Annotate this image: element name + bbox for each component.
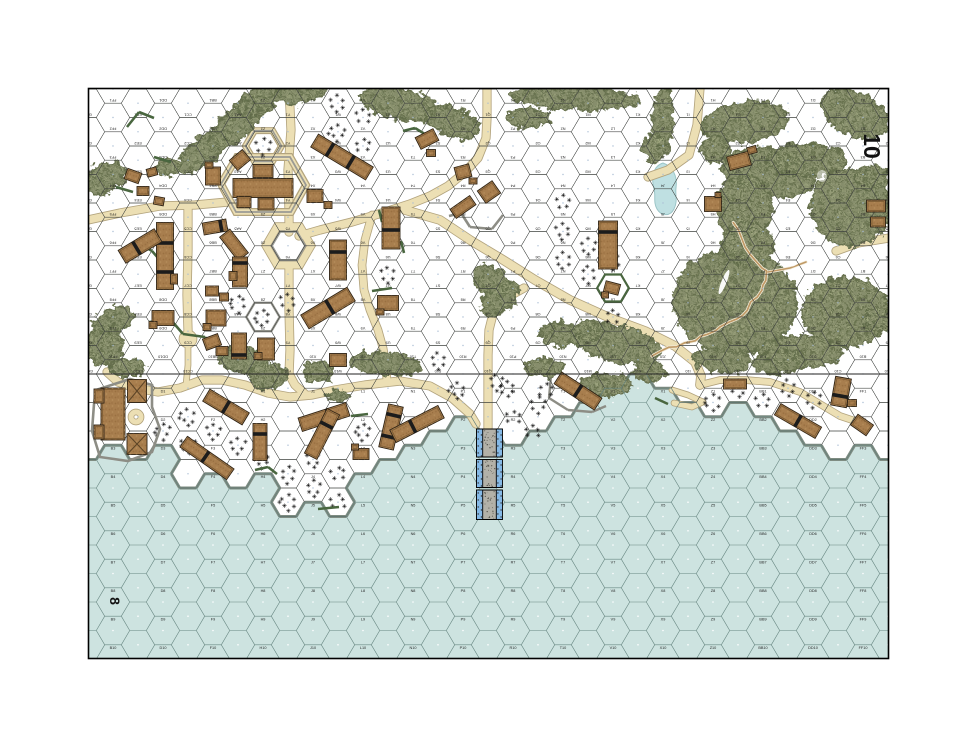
svg-text:P8: P8 — [461, 589, 466, 593]
svg-text:DD9: DD9 — [809, 618, 817, 622]
svg-text:V5: V5 — [361, 212, 366, 216]
svg-text:T5: T5 — [561, 503, 565, 507]
svg-text:FF5: FF5 — [110, 212, 117, 216]
svg-text:B3: B3 — [111, 446, 116, 450]
svg-text:C3: C3 — [836, 169, 841, 173]
svg-text:N10: N10 — [560, 355, 567, 359]
svg-text:R8: R8 — [511, 589, 516, 593]
svg-text:N7: N7 — [411, 561, 416, 565]
svg-text:T1: T1 — [411, 98, 415, 102]
svg-text:L1: L1 — [611, 98, 615, 102]
svg-text:L2: L2 — [361, 418, 365, 422]
svg-text:R3: R3 — [461, 155, 466, 159]
svg-text:V5: V5 — [611, 503, 616, 507]
svg-text:X6: X6 — [311, 241, 316, 245]
svg-text:Z3: Z3 — [711, 446, 715, 450]
svg-text:P8: P8 — [511, 298, 516, 302]
svg-text:DD5: DD5 — [809, 503, 817, 507]
svg-text:S3: S3 — [436, 169, 441, 173]
svg-text:FF7: FF7 — [860, 561, 867, 565]
svg-text:L1: L1 — [361, 389, 365, 393]
svg-text:Q1: Q1 — [485, 112, 490, 116]
svg-text:G9: G9 — [735, 340, 740, 344]
svg-text:F4: F4 — [211, 475, 215, 479]
svg-text:M8: M8 — [585, 312, 590, 316]
svg-text:I3: I3 — [686, 169, 689, 173]
svg-text:U6: U6 — [386, 255, 391, 259]
svg-text:B5: B5 — [111, 503, 116, 507]
svg-text:R9: R9 — [511, 618, 516, 622]
svg-text:W3: W3 — [335, 169, 341, 173]
svg-text:V4: V4 — [611, 475, 616, 479]
svg-text:U8: U8 — [386, 312, 391, 316]
svg-text:P4: P4 — [511, 184, 516, 188]
svg-text:Z9: Z9 — [711, 618, 715, 622]
svg-text:U1: U1 — [386, 112, 391, 116]
svg-text:P2: P2 — [511, 127, 516, 131]
svg-text:O2: O2 — [535, 141, 540, 145]
svg-text:C5: C5 — [836, 226, 841, 230]
svg-text:DD8: DD8 — [809, 589, 817, 593]
svg-text:X3: X3 — [311, 155, 316, 159]
svg-text:J3: J3 — [661, 155, 665, 159]
svg-text:Y5: Y5 — [286, 226, 291, 230]
svg-text:D3: D3 — [161, 446, 166, 450]
svg-text:P5: P5 — [461, 503, 466, 507]
svg-text:V8: V8 — [361, 298, 366, 302]
svg-text:H7: H7 — [261, 561, 266, 565]
svg-text:Z6: Z6 — [261, 241, 265, 245]
svg-text:F10: F10 — [760, 355, 767, 359]
svg-text:N8: N8 — [561, 298, 566, 302]
svg-text:FF3: FF3 — [110, 155, 117, 159]
svg-text:J6: J6 — [661, 241, 665, 245]
svg-text:M5: M5 — [585, 226, 590, 230]
svg-text:R3: R3 — [511, 446, 516, 450]
svg-text:N10: N10 — [410, 646, 417, 650]
svg-text:D9: D9 — [161, 618, 166, 622]
svg-text:H7: H7 — [711, 269, 716, 273]
svg-text:V3: V3 — [611, 446, 616, 450]
svg-text:J10: J10 — [310, 646, 316, 650]
svg-text:D2: D2 — [811, 127, 816, 131]
svg-text:D4: D4 — [811, 184, 816, 188]
svg-text:FF6: FF6 — [860, 532, 867, 536]
svg-text:H3: H3 — [711, 155, 716, 159]
svg-text:T9: T9 — [411, 326, 415, 330]
svg-text:E9: E9 — [786, 340, 791, 344]
svg-text:FF9: FF9 — [860, 618, 867, 622]
svg-text:EE5: EE5 — [134, 226, 141, 230]
svg-text:P9: P9 — [461, 618, 466, 622]
svg-text:K7: K7 — [636, 283, 641, 287]
svg-text:O9: O9 — [535, 340, 540, 344]
svg-text:J7: J7 — [661, 269, 665, 273]
svg-text:H1: H1 — [711, 98, 716, 102]
svg-text:L3: L3 — [611, 155, 615, 159]
svg-text:L5: L5 — [361, 503, 365, 507]
svg-text:V8: V8 — [611, 589, 616, 593]
svg-text:R6: R6 — [511, 532, 516, 536]
svg-text:H5: H5 — [711, 212, 716, 216]
svg-text:BB3: BB3 — [759, 446, 766, 450]
svg-text:P6: P6 — [511, 241, 516, 245]
svg-text:D9: D9 — [811, 326, 816, 330]
svg-text:T6: T6 — [561, 532, 565, 536]
svg-text:R10: R10 — [510, 646, 517, 650]
svg-text:T3: T3 — [561, 446, 565, 450]
svg-text:R9: R9 — [461, 326, 466, 330]
svg-text:D10: D10 — [160, 646, 167, 650]
svg-text:R10: R10 — [460, 355, 467, 359]
svg-text:E3: E3 — [786, 169, 791, 173]
svg-text:G3: G3 — [735, 169, 740, 173]
svg-text:V7: V7 — [361, 269, 366, 273]
svg-text:F4: F4 — [761, 184, 765, 188]
svg-text:Z4: Z4 — [711, 475, 715, 479]
svg-text:N4: N4 — [411, 475, 416, 479]
svg-text:J4: J4 — [311, 475, 315, 479]
svg-text:L6: L6 — [361, 532, 365, 536]
svg-text:FF1: FF1 — [110, 98, 117, 102]
svg-text:L2: L2 — [611, 127, 615, 131]
svg-text:D3: D3 — [811, 155, 816, 159]
svg-text:Y1: Y1 — [286, 112, 291, 116]
svg-text:Y7: Y7 — [286, 283, 291, 287]
svg-text:L4: L4 — [361, 475, 365, 479]
svg-text:M10: M10 — [584, 369, 591, 373]
svg-text:Q8: Q8 — [485, 312, 490, 316]
svg-text:Z2: Z2 — [261, 127, 265, 131]
svg-text:J10: J10 — [660, 355, 666, 359]
svg-text:Q2: Q2 — [485, 141, 490, 145]
svg-text:K6: K6 — [636, 255, 641, 259]
svg-text:BB9: BB9 — [759, 618, 766, 622]
svg-text:K2: K2 — [636, 141, 641, 145]
svg-text:CC3: CC3 — [184, 169, 192, 173]
svg-text:P7: P7 — [461, 561, 466, 565]
svg-text:DD4: DD4 — [159, 184, 167, 188]
svg-text:EE8: EE8 — [134, 312, 141, 316]
svg-text:C6: C6 — [836, 255, 841, 259]
svg-text:V9: V9 — [361, 326, 366, 330]
svg-text:C1: C1 — [836, 112, 841, 116]
svg-text:O8: O8 — [535, 312, 540, 316]
svg-text:B4: B4 — [861, 184, 866, 188]
svg-text:J6: J6 — [311, 532, 315, 536]
svg-text:F5: F5 — [761, 212, 765, 216]
svg-text:CC1: CC1 — [184, 112, 192, 116]
svg-text:O6: O6 — [535, 255, 540, 259]
svg-text:Z1: Z1 — [261, 98, 265, 102]
svg-text:AA2: AA2 — [234, 141, 241, 145]
svg-text:DD5: DD5 — [159, 212, 167, 216]
svg-text:O10: O10 — [534, 369, 541, 373]
svg-text:B7: B7 — [111, 561, 116, 565]
svg-text:F3: F3 — [211, 446, 215, 450]
svg-text:Y10: Y10 — [285, 369, 292, 373]
svg-text:BB1: BB1 — [759, 389, 766, 393]
svg-text:I4: I4 — [686, 198, 689, 202]
svg-text:BB1: BB1 — [209, 98, 216, 102]
svg-text:N3: N3 — [411, 446, 416, 450]
svg-text:S7: S7 — [436, 283, 441, 287]
svg-text:H1: H1 — [261, 389, 266, 393]
svg-text:S1: S1 — [436, 112, 441, 116]
svg-text:B9: B9 — [861, 326, 866, 330]
svg-text:Z5: Z5 — [711, 503, 715, 507]
svg-text:BB7: BB7 — [209, 269, 216, 273]
svg-text:CC10: CC10 — [183, 369, 193, 373]
svg-text:DD7: DD7 — [809, 561, 817, 565]
svg-text:BB5: BB5 — [209, 212, 216, 216]
svg-text:C8: C8 — [836, 312, 841, 316]
svg-text:O1: O1 — [535, 112, 540, 116]
svg-text:V4: V4 — [361, 184, 366, 188]
svg-text:P3: P3 — [511, 155, 516, 159]
svg-text:B10: B10 — [860, 355, 867, 359]
svg-text:CC9: CC9 — [184, 340, 192, 344]
svg-text:T4: T4 — [411, 184, 415, 188]
svg-text:B1: B1 — [861, 98, 866, 102]
svg-text:DD10: DD10 — [808, 646, 818, 650]
svg-text:T7: T7 — [411, 269, 415, 273]
svg-text:F2: F2 — [761, 127, 765, 131]
svg-text:N9: N9 — [411, 618, 416, 622]
svg-text:X7: X7 — [311, 269, 316, 273]
svg-text:I2: I2 — [686, 141, 689, 145]
svg-text:Z10: Z10 — [710, 646, 717, 650]
svg-text:M9: M9 — [585, 340, 590, 344]
svg-text:BB10: BB10 — [758, 646, 767, 650]
svg-text:L8: L8 — [361, 589, 365, 593]
svg-text:FF8: FF8 — [860, 589, 867, 593]
svg-text:T7: T7 — [561, 561, 565, 565]
svg-text:BB2: BB2 — [759, 418, 766, 422]
svg-text:J8: J8 — [661, 298, 665, 302]
svg-text:H2: H2 — [261, 418, 266, 422]
svg-text:D4: D4 — [161, 475, 166, 479]
svg-text:K10: K10 — [635, 369, 642, 373]
svg-text:D8: D8 — [161, 589, 166, 593]
svg-text:DD3: DD3 — [809, 446, 817, 450]
svg-text:N8: N8 — [411, 589, 416, 593]
svg-text:H6: H6 — [261, 532, 266, 536]
svg-text:D7: D7 — [161, 561, 166, 565]
svg-text:X2: X2 — [311, 127, 316, 131]
svg-text:P6: P6 — [461, 532, 466, 536]
svg-text:Q9: Q9 — [485, 340, 490, 344]
svg-text:S6: S6 — [436, 255, 441, 259]
svg-text:D1: D1 — [161, 389, 166, 393]
svg-text:C4: C4 — [836, 198, 841, 202]
svg-text:T10: T10 — [410, 355, 417, 359]
svg-text:Y2: Y2 — [286, 141, 291, 145]
svg-text:B8: B8 — [111, 589, 116, 593]
svg-text:J7: J7 — [311, 561, 315, 565]
svg-text:V10: V10 — [610, 646, 617, 650]
svg-text:L10: L10 — [610, 355, 616, 359]
svg-text:J1: J1 — [661, 98, 665, 102]
svg-text:FF2: FF2 — [110, 127, 117, 131]
svg-text:H9: H9 — [711, 326, 716, 330]
svg-text:CC6: CC6 — [184, 255, 192, 259]
svg-text:L5: L5 — [611, 212, 615, 216]
svg-text:W9: W9 — [335, 340, 341, 344]
svg-text:C2: C2 — [836, 141, 841, 145]
svg-text:N2: N2 — [561, 127, 566, 131]
svg-text:CC5: CC5 — [184, 226, 192, 230]
svg-text:N1: N1 — [561, 98, 566, 102]
svg-text:CC7: CC7 — [184, 283, 192, 287]
svg-text:BB5: BB5 — [759, 503, 766, 507]
svg-text:K8: K8 — [636, 312, 641, 316]
svg-text:H5: H5 — [261, 503, 266, 507]
svg-text:T3: T3 — [411, 155, 415, 159]
svg-text:K1: K1 — [636, 112, 641, 116]
svg-text:V9: V9 — [611, 618, 616, 622]
svg-text:FF8: FF8 — [110, 298, 117, 302]
svg-text:I5: I5 — [686, 226, 689, 230]
svg-text:X7: X7 — [661, 561, 666, 565]
svg-text:H4: H4 — [711, 184, 716, 188]
svg-text:Z7: Z7 — [261, 269, 265, 273]
svg-text:EE10: EE10 — [133, 369, 142, 373]
svg-text:R2: R2 — [511, 418, 516, 422]
svg-text:H2: H2 — [711, 127, 716, 131]
svg-text:G8: G8 — [735, 312, 740, 316]
svg-text:B5: B5 — [861, 212, 866, 216]
svg-text:FF3: FF3 — [860, 446, 867, 450]
svg-text:X3: X3 — [661, 446, 666, 450]
svg-text:Q6: Q6 — [485, 255, 490, 259]
svg-text:O4: O4 — [535, 198, 540, 202]
svg-text:Z5: Z5 — [261, 212, 265, 216]
svg-text:T9: T9 — [561, 618, 565, 622]
svg-text:E6: E6 — [786, 255, 791, 259]
svg-text:W7: W7 — [335, 283, 341, 287]
svg-text:F6: F6 — [211, 532, 215, 536]
svg-text:EE7: EE7 — [134, 283, 141, 287]
svg-text:EE2: EE2 — [134, 141, 141, 145]
svg-text:J2: J2 — [661, 127, 665, 131]
svg-text:FF4: FF4 — [110, 184, 117, 188]
svg-text:D10: D10 — [810, 355, 817, 359]
svg-text:B10: B10 — [110, 646, 117, 650]
svg-text:G5: G5 — [735, 226, 740, 230]
svg-text:V1: V1 — [611, 389, 616, 393]
svg-text:Z7: Z7 — [711, 561, 715, 565]
svg-text:F3: F3 — [761, 155, 765, 159]
svg-text:R7: R7 — [511, 561, 516, 565]
svg-text:X10: X10 — [310, 355, 317, 359]
svg-text:U10: U10 — [385, 369, 392, 373]
svg-text:X6: X6 — [661, 532, 666, 536]
svg-text:DD2: DD2 — [159, 127, 167, 131]
svg-text:N1: N1 — [411, 389, 416, 393]
svg-text:X1: X1 — [311, 98, 316, 102]
svg-text:H10: H10 — [710, 355, 717, 359]
svg-text:H8: H8 — [261, 589, 266, 593]
svg-text:L7: L7 — [361, 561, 365, 565]
svg-text:C7: C7 — [836, 283, 841, 287]
svg-text:I1: I1 — [686, 112, 689, 116]
svg-text:BB7: BB7 — [759, 561, 766, 565]
svg-text:J5: J5 — [661, 212, 665, 216]
svg-text:FF9: FF9 — [110, 326, 117, 330]
svg-text:FF10: FF10 — [859, 646, 868, 650]
svg-text:CC8: CC8 — [184, 312, 192, 316]
svg-text:Z8: Z8 — [711, 589, 715, 593]
svg-text:L9: L9 — [611, 326, 615, 330]
svg-text:I9: I9 — [686, 340, 689, 344]
svg-text:H10: H10 — [260, 646, 267, 650]
svg-text:T10: T10 — [560, 646, 567, 650]
svg-text:U4: U4 — [386, 198, 391, 202]
svg-text:M4: M4 — [585, 198, 590, 202]
svg-text:E2: E2 — [786, 141, 791, 145]
svg-text:E4: E4 — [786, 198, 791, 202]
svg-text:Q7: Q7 — [485, 283, 490, 287]
svg-text:O3: O3 — [535, 169, 540, 173]
svg-text:J8: J8 — [311, 589, 315, 593]
svg-text:8: 8 — [107, 597, 123, 605]
svg-text:FF6: FF6 — [110, 241, 117, 245]
svg-text:AA1: AA1 — [234, 112, 241, 116]
svg-text:F7: F7 — [211, 561, 215, 565]
svg-text:X4: X4 — [661, 475, 666, 479]
svg-text:BB3: BB3 — [209, 155, 216, 159]
svg-text:Z6: Z6 — [711, 532, 715, 536]
svg-text:FF7: FF7 — [110, 269, 117, 273]
svg-text:V10: V10 — [360, 355, 367, 359]
svg-text:P1: P1 — [511, 98, 516, 102]
svg-text:V6: V6 — [611, 532, 616, 536]
svg-text:V2: V2 — [361, 127, 366, 131]
svg-text:D8: D8 — [811, 298, 816, 302]
svg-text:D1: D1 — [811, 98, 816, 102]
svg-text:J4: J4 — [661, 184, 665, 188]
svg-text:G7: G7 — [735, 283, 740, 287]
svg-text:J9: J9 — [311, 618, 315, 622]
svg-text:N5: N5 — [561, 212, 566, 216]
svg-text:V6: V6 — [361, 241, 366, 245]
svg-text:M1: M1 — [585, 112, 590, 116]
svg-text:Y4: Y4 — [286, 198, 291, 202]
svg-text:BB8: BB8 — [759, 589, 766, 593]
svg-text:D7: D7 — [811, 269, 816, 273]
svg-text:G1: G1 — [735, 112, 740, 116]
svg-text:DD9: DD9 — [159, 326, 167, 330]
svg-text:B8: B8 — [861, 298, 866, 302]
svg-text:B4: B4 — [111, 475, 116, 479]
svg-text:DD6: DD6 — [809, 532, 817, 536]
svg-text:BB4: BB4 — [759, 475, 766, 479]
svg-text:X5: X5 — [311, 212, 316, 216]
svg-text:X8: X8 — [311, 298, 316, 302]
svg-text:K3: K3 — [636, 169, 641, 173]
svg-text:E5: E5 — [786, 226, 791, 230]
svg-text:J5: J5 — [311, 503, 315, 507]
svg-text:R7: R7 — [461, 269, 466, 273]
svg-text:G6: G6 — [735, 255, 740, 259]
svg-text:I10: I10 — [685, 369, 690, 373]
svg-text:P9: P9 — [511, 326, 516, 330]
svg-text:F9: F9 — [761, 326, 765, 330]
svg-text:L4: L4 — [611, 184, 615, 188]
svg-text:BB6: BB6 — [759, 532, 766, 536]
svg-text:AA5: AA5 — [234, 226, 241, 230]
